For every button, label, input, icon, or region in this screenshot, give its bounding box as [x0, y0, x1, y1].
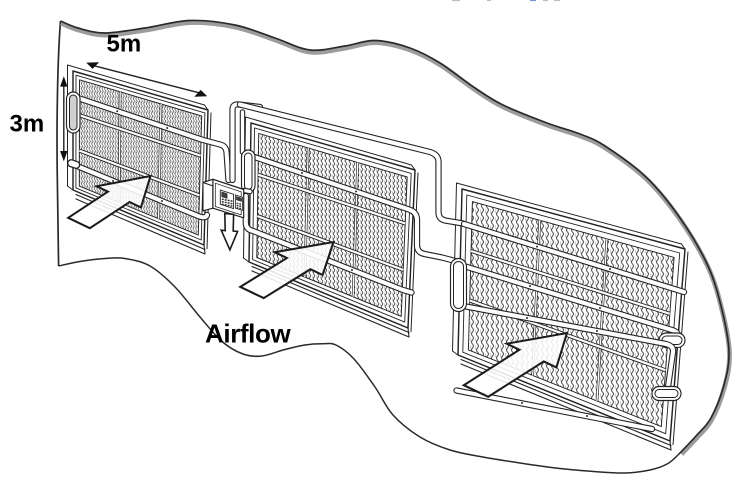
svg-text:5m: 5m	[107, 31, 142, 58]
svg-text:3m: 3m	[10, 111, 45, 138]
svg-text:Airflow: Airflow	[205, 319, 291, 349]
